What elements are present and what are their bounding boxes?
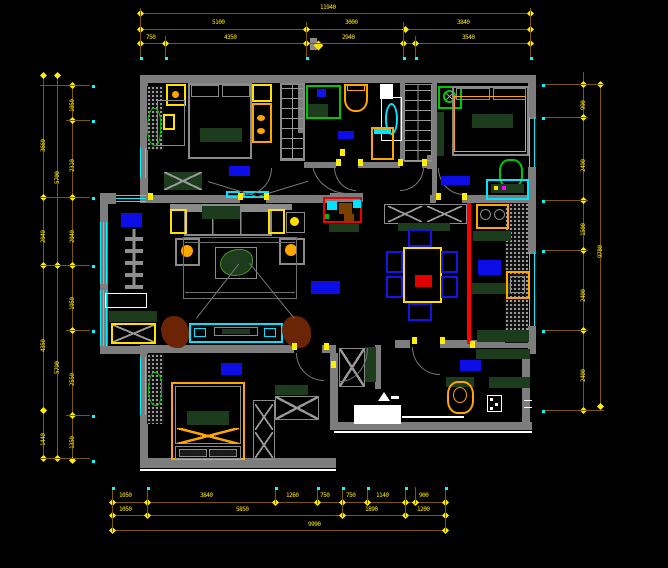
- reference-dot: [92, 85, 95, 88]
- dimension-label: 4350: [41, 340, 47, 352]
- extension-line: [403, 22, 404, 58]
- step-line: [524, 407, 532, 408]
- tv-cabinet-speaker-left: [194, 328, 206, 337]
- dimension-label: 1140: [376, 493, 388, 499]
- dimension-label: 2490: [581, 160, 587, 172]
- dimension-line: [140, 29, 530, 30]
- dimension-label: 1050: [119, 493, 131, 499]
- bedroom3-wardrobe-horizontal: [275, 396, 319, 420]
- reference-dot: [445, 487, 448, 490]
- dining-chair-right-2: [441, 276, 458, 298]
- door-arc-bedroom3: [296, 353, 324, 381]
- dimension-label: 9780: [598, 246, 604, 258]
- extension-line: [545, 250, 588, 251]
- potted-plant-left: [161, 316, 189, 348]
- tv-cabinet-speaker-right: [264, 328, 276, 337]
- floor-lamp-right: [268, 209, 285, 234]
- bedroom1-mirror: [163, 114, 175, 130]
- bedroom1-nightstand-right: [252, 84, 272, 102]
- reference-dot: [542, 250, 545, 253]
- hall-cabinet-base: [329, 224, 359, 232]
- dimension-label: 750: [346, 493, 355, 499]
- extension-line: [40, 85, 90, 86]
- dimension-tick: [54, 72, 61, 79]
- door-arc-bath-2: [400, 167, 424, 191]
- dimension-label: 4350: [224, 35, 236, 41]
- dimension-line: [583, 72, 584, 410]
- bedroom3-shelf: [275, 385, 308, 395]
- wall-exterior-right-2: [528, 167, 536, 254]
- extension-line: [545, 410, 604, 411]
- washing-machine: [111, 323, 156, 344]
- bedroom1-dresser-right: [252, 103, 272, 143]
- plant-vine-top-left: [147, 108, 161, 146]
- desk-item-yellow: [494, 186, 498, 190]
- dining-chair-left-1: [386, 251, 403, 273]
- door-hinge-mark: [331, 361, 336, 368]
- closet-side-shelf: [437, 112, 444, 156]
- dimension-label: 1200: [417, 507, 429, 513]
- extension-line: [445, 487, 446, 532]
- bedroom1-pillow-right: [222, 85, 250, 97]
- dimension-tick: [597, 403, 604, 410]
- cabinet-decor-5: [325, 214, 329, 219]
- dimension-line: [140, 43, 530, 44]
- dimension-label: 2040: [70, 231, 76, 243]
- wall-exterior-right-1: [528, 75, 536, 119]
- cad-floor-plan-canvas[interactable]: 1194051003000384075043502940354010503840…: [0, 0, 668, 568]
- rug-line: [185, 242, 295, 243]
- dimension-label: 1350: [70, 437, 76, 449]
- stove-burner-2: [494, 209, 505, 220]
- wall-shower-head-icon: [317, 89, 326, 97]
- stove-burner-1: [480, 209, 491, 220]
- extension-line: [545, 200, 588, 201]
- entry-shoe-cabinet-1: [476, 349, 530, 359]
- dimension-label: 2940: [342, 35, 354, 41]
- dimension-label: 5700: [55, 172, 61, 184]
- kitchen-sink-basin: [510, 276, 525, 293]
- balcony-label: [121, 213, 142, 227]
- dimension-line: [600, 82, 601, 406]
- north-arrow-icon: [378, 392, 390, 401]
- door-hinge-mark: [340, 149, 345, 156]
- door-hinge-mark: [336, 159, 341, 166]
- dimension-label: 1050: [70, 100, 76, 112]
- dimension-line: [140, 13, 530, 14]
- floor-lamp-left: [170, 209, 187, 234]
- window-balcony-top: [116, 195, 146, 202]
- reference-dot: [275, 487, 278, 490]
- sofa-cushion: [202, 206, 240, 219]
- bedroom1-pillow-left: [191, 85, 219, 97]
- bedroom2-label: [441, 176, 470, 185]
- ac-unit: [105, 293, 147, 308]
- headboard-panel-1: [179, 449, 207, 457]
- shower-shelf: [308, 104, 328, 117]
- cabinet-decor-4: [344, 214, 354, 221]
- entry-threshold: [402, 416, 464, 418]
- reference-dot: [92, 265, 95, 268]
- balcony-plant-rack: [125, 229, 143, 289]
- living-rug: [183, 237, 297, 299]
- dimension-label: 750: [146, 35, 155, 41]
- bedroom3-bed-drape: [177, 428, 239, 444]
- door-hinge-mark: [462, 193, 467, 200]
- kitchen-partition-red-line: [467, 203, 471, 344]
- window-bedroom2: [529, 117, 535, 169]
- dining-chair-bottom: [408, 303, 432, 321]
- extension-line: [66, 330, 90, 331]
- window-balcony-1: [100, 222, 107, 284]
- wardrobe-door-panel: [255, 404, 273, 430]
- bedroom1-dresser-knob-2: [257, 128, 265, 134]
- bedroom1-bench: [164, 172, 202, 190]
- plant-vine-bottom-left: [148, 372, 162, 406]
- extension-line: [40, 265, 90, 266]
- reference-dot: [92, 197, 95, 200]
- dimension-label: 1950: [70, 298, 76, 310]
- door-hinge-mark: [436, 193, 441, 200]
- dimension-label: 5850: [236, 507, 248, 513]
- cabinet-decor-2: [339, 203, 352, 214]
- reference-dot: [165, 57, 168, 60]
- dining-chair-top: [408, 229, 432, 247]
- extension-line: [66, 415, 90, 416]
- bathroom-label: [338, 131, 354, 139]
- dimension-label: 1890: [365, 507, 377, 513]
- door-hinge-mark: [238, 193, 243, 200]
- extension-line: [306, 22, 307, 58]
- extension-line: [112, 487, 113, 532]
- dimension-label: 9990: [308, 522, 320, 528]
- dimension-label: 3540: [462, 35, 474, 41]
- extension-line: [40, 458, 90, 459]
- dimension-label: 2550: [70, 374, 76, 386]
- dimension-label: 1050: [119, 507, 131, 513]
- reference-dot: [92, 415, 95, 418]
- wall-outline-entry: [334, 431, 532, 433]
- drain-dot: [490, 398, 493, 401]
- reference-dot: [542, 117, 545, 120]
- door-hinge-mark: [358, 159, 363, 166]
- dimension-label: 3840: [457, 20, 469, 26]
- extension-line: [545, 84, 604, 85]
- cabinet-decor-1: [327, 201, 337, 210]
- extension-line: [405, 487, 406, 517]
- living-room-label: [311, 281, 340, 294]
- dimension-label: 990: [581, 101, 587, 110]
- bedroom1-label: [229, 166, 250, 176]
- extension-line: [415, 487, 416, 504]
- extension-line: [545, 117, 588, 118]
- door-hinge-mark: [264, 193, 269, 200]
- reference-dot: [542, 200, 545, 203]
- kitchen-counter-1: [473, 231, 511, 241]
- dining-table-mat: [415, 275, 432, 287]
- entry-chair-seat: [453, 387, 467, 403]
- drain-dot: [490, 407, 493, 410]
- rug-line: [185, 292, 295, 293]
- dimension-label: 2400: [581, 370, 587, 382]
- kitchen-counter-2: [471, 283, 511, 294]
- door-arc-hall: [312, 162, 348, 194]
- door-hinge-mark: [148, 193, 153, 200]
- bedroom1-wardrobe: [280, 83, 305, 161]
- dining-chair-right-1: [441, 251, 458, 273]
- door-hinge-mark: [470, 341, 475, 348]
- dimension-tick: [40, 72, 47, 79]
- dimension-line: [112, 515, 445, 516]
- extension-line: [140, 8, 141, 58]
- dimension-label: 5100: [212, 20, 224, 26]
- bedroom1-nightstand-lamp-icon: [172, 91, 179, 98]
- entry-white-label-block: [354, 405, 401, 424]
- bath-mirror: [374, 129, 391, 134]
- dimension-label: 1440: [41, 434, 47, 446]
- reference-dot: [306, 57, 309, 60]
- wall-exterior-top: [140, 75, 536, 83]
- reference-dot: [92, 460, 95, 463]
- reference-dot: [530, 57, 533, 60]
- extension-line: [342, 487, 343, 517]
- dimension-label: 5790: [55, 362, 61, 374]
- reference-dot: [112, 487, 115, 490]
- dining-chair-left-2: [386, 276, 403, 298]
- dimension-label: 3660: [41, 140, 47, 152]
- door-arc-entry: [412, 347, 440, 375]
- dimension-line: [72, 85, 73, 460]
- reference-dot: [542, 84, 545, 87]
- north-arrow-bar: [391, 396, 399, 399]
- window-bedroom3: [140, 357, 146, 415]
- bedroom2-blanket: [472, 114, 513, 128]
- dimension-label: 750: [320, 493, 329, 499]
- headboard-panel-2: [209, 449, 237, 457]
- dimension-label: 3000: [345, 20, 357, 26]
- door-hinge-mark: [324, 343, 329, 350]
- reference-dot: [140, 57, 143, 60]
- toilet-tank: [347, 85, 365, 91]
- dimension-label: 900: [419, 493, 428, 499]
- door-hinge-mark: [440, 337, 445, 344]
- reference-dot: [542, 410, 545, 413]
- tv-screen: [222, 329, 250, 334]
- entry-shoe-cabinet-3: [489, 377, 530, 388]
- reference-dot: [403, 57, 406, 60]
- dimension-label: 11940: [320, 5, 336, 11]
- balcony-bench: [109, 311, 157, 322]
- kitchen-label: [478, 260, 501, 275]
- extension-line: [147, 487, 148, 517]
- dimension-label: 1500: [581, 224, 587, 236]
- dimension-label: 2400: [581, 290, 587, 302]
- cabinet-decor-3: [353, 200, 361, 208]
- bedroom1-dresser-knob-1: [257, 115, 265, 121]
- door-hinge-mark: [398, 159, 403, 166]
- bedroom3-blanket: [187, 411, 229, 425]
- dimension-label: 2310: [70, 160, 76, 172]
- reference-dot: [405, 487, 408, 490]
- extension-line: [165, 36, 166, 58]
- step-line: [524, 400, 532, 401]
- bedroom1-blanket: [200, 128, 242, 142]
- reference-dot: [342, 487, 345, 490]
- extension-line: [530, 8, 531, 58]
- window-left-top: [140, 148, 146, 178]
- extension-line: [545, 330, 588, 331]
- reference-dot: [367, 487, 370, 490]
- wall-outline-bottom: [140, 469, 336, 471]
- wall-balcony-corner: [100, 193, 116, 204]
- desk-item-magenta: [502, 186, 506, 190]
- dimension-tick: [40, 407, 47, 414]
- reference-dot: [415, 57, 418, 60]
- kitchen-counter-3: [477, 330, 529, 342]
- wall-entry-right: [522, 352, 530, 426]
- dimension-label: 3840: [200, 493, 212, 499]
- extension-line: [40, 197, 90, 198]
- door-hinge-mark: [412, 337, 417, 344]
- side-table-lamp-icon: [290, 217, 299, 226]
- door-hinge-mark: [422, 159, 427, 166]
- drain-dot: [495, 403, 498, 406]
- dimension-line: [112, 530, 445, 531]
- dimension-label: 2040: [41, 231, 47, 243]
- extension-line: [66, 120, 90, 121]
- door-hinge-mark: [292, 343, 297, 350]
- dimension-label: 1260: [286, 493, 298, 499]
- sideboard-panel-1: [388, 206, 422, 222]
- sideboard-panel-2: [427, 206, 462, 222]
- reference-dot: [92, 330, 95, 333]
- reference-dot: [542, 330, 545, 333]
- reference-dot: [317, 487, 320, 490]
- closet-shelving: [404, 84, 432, 162]
- bedroom3-label: [221, 363, 242, 375]
- extension-line: [415, 36, 416, 58]
- reference-dot: [147, 487, 150, 490]
- wardrobe-door-panel: [255, 432, 273, 458]
- reference-dot: [92, 120, 95, 123]
- entry-label: [460, 360, 481, 371]
